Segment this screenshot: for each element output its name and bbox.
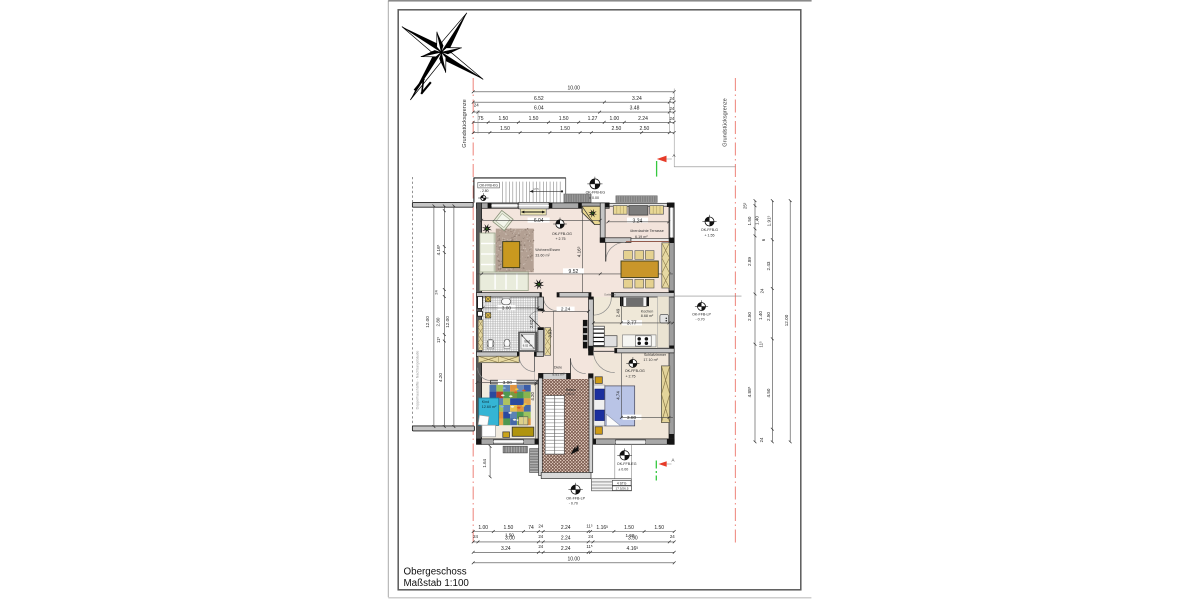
svg-text:Schlafzimmer: Schlafzimmer	[644, 353, 667, 357]
svg-text:3.24: 3.24	[633, 219, 643, 225]
svg-text:1.00: 1.00	[609, 116, 619, 122]
svg-text:1.50: 1.50	[559, 116, 569, 122]
svg-text:1.50: 1.50	[498, 116, 508, 122]
svg-text:1.50: 1.50	[529, 116, 539, 122]
svg-text:9.52: 9.52	[569, 269, 579, 275]
svg-text:17.10 m²: 17.10 m²	[643, 358, 658, 362]
svg-text:3.24: 3.24	[501, 546, 511, 552]
svg-text:1.50: 1.50	[654, 525, 664, 531]
svg-text:24: 24	[473, 534, 478, 539]
svg-text:2.24: 2.24	[638, 116, 648, 122]
svg-text:+ 1.55: + 1.55	[704, 233, 714, 237]
svg-text:74: 74	[528, 525, 534, 531]
svg-text:OK-FFB-OG: OK-FFB-OG	[625, 369, 645, 373]
svg-text:1.50: 1.50	[500, 126, 510, 132]
svg-text:3.24: 3.24	[632, 96, 642, 102]
svg-text:2.24: 2.24	[561, 525, 571, 531]
svg-text:24: 24	[538, 534, 543, 539]
svg-text:6.04: 6.04	[534, 106, 544, 112]
svg-text:± 0.00: ± 0.00	[589, 196, 599, 200]
svg-text:3.80: 3.80	[627, 415, 637, 421]
svg-text:1.50: 1.50	[505, 533, 514, 538]
svg-text:24: 24	[539, 374, 543, 378]
svg-text:12.00: 12.00	[445, 316, 450, 328]
svg-text:- 2.80: - 2.80	[480, 189, 489, 193]
svg-text:2.24: 2.24	[561, 546, 571, 552]
svg-text:2.80: 2.80	[435, 317, 440, 326]
svg-text:Grundstücksgrenze: Grundstücksgrenze	[462, 99, 468, 148]
svg-text:1.50: 1.50	[560, 126, 570, 132]
svg-text:12.00: 12.00	[784, 314, 789, 326]
svg-text:6.04: 6.04	[534, 218, 544, 224]
svg-text:2.49: 2.49	[615, 308, 620, 317]
svg-text:24: 24	[588, 534, 593, 539]
svg-text:24: 24	[433, 290, 438, 295]
svg-text:10.00: 10.00	[567, 556, 580, 562]
svg-text:Bad: Bad	[524, 340, 530, 344]
svg-text:OK-FFB-EG: OK-FFB-EG	[617, 462, 637, 466]
svg-text:17.5: 17.5	[533, 187, 539, 191]
svg-text:Kochen: Kochen	[641, 309, 654, 313]
svg-text:4.74: 4.74	[615, 391, 620, 400]
svg-text:2.50: 2.50	[747, 312, 752, 321]
svg-text:4.20: 4.20	[530, 392, 535, 401]
svg-text:33.60 m²: 33.60 m²	[535, 253, 550, 257]
svg-text:3.93: 3.93	[547, 329, 552, 338]
svg-text:A: A	[672, 458, 675, 463]
svg-text:75: 75	[478, 116, 484, 122]
svg-text:1.50: 1.50	[624, 525, 634, 531]
svg-text:24: 24	[759, 437, 764, 442]
svg-text:24: 24	[538, 544, 543, 549]
svg-text:24: 24	[759, 288, 764, 293]
svg-text:Kind: Kind	[482, 400, 489, 404]
svg-text:1.50: 1.50	[626, 533, 635, 538]
svg-text:OK-FFB-KG: OK-FFB-KG	[479, 184, 498, 188]
svg-text:Obergeschoss: Obergeschoss	[404, 567, 467, 578]
svg-text:+ 2.75: + 2.75	[555, 237, 565, 241]
svg-text:8.81 m²: 8.81 m²	[552, 372, 565, 376]
svg-text:1.50: 1.50	[747, 216, 752, 225]
svg-text:1.40: 1.40	[754, 216, 759, 225]
svg-text:2.24: 2.24	[561, 536, 571, 542]
svg-text:überdachte Terrasse: überdachte Terrasse	[630, 229, 664, 233]
svg-text:A: A	[673, 153, 676, 158]
svg-text:6.52: 6.52	[534, 96, 544, 102]
svg-text:4.20: 4.20	[438, 373, 443, 382]
svg-text:24: 24	[670, 534, 675, 539]
svg-text:24: 24	[474, 103, 479, 108]
svg-text:3.48: 3.48	[630, 106, 640, 112]
svg-text:12.60 m²: 12.60 m²	[482, 405, 497, 409]
svg-text:3.00: 3.00	[503, 380, 513, 386]
svg-text:Grundstücksgrenze: Grundstücksgrenze	[723, 98, 729, 147]
svg-text:2.50: 2.50	[766, 312, 771, 321]
svg-text:17.5/26.5: 17.5/26.5	[616, 487, 629, 491]
svg-text:4.50 m²: 4.50 m²	[565, 392, 576, 396]
svg-text:24: 24	[538, 524, 543, 529]
svg-text:OK-FFB-OG: OK-FFB-OG	[552, 232, 572, 236]
svg-text:2.24: 2.24	[561, 307, 571, 313]
svg-text:1.27: 1.27	[588, 116, 598, 122]
svg-text:2.62: 2.62	[529, 319, 534, 328]
svg-text:2.50: 2.50	[640, 126, 650, 132]
svg-text:OK-FFB-EG: OK-FFB-EG	[586, 190, 606, 194]
svg-text:6.02 m²: 6.02 m²	[523, 343, 533, 347]
svg-text:2.89: 2.89	[747, 257, 752, 266]
svg-text:+ 2.75: + 2.75	[625, 374, 635, 378]
svg-text:Doppelhaushälfte - Nachbargebä: Doppelhaushälfte - Nachbargebäude	[415, 351, 419, 410]
svg-text:Maßstab 1:100: Maßstab 1:100	[404, 578, 470, 589]
svg-text:- 0.70: - 0.70	[695, 317, 704, 321]
svg-text:Wohnen/Essen: Wohnen/Essen	[535, 248, 560, 252]
svg-text:6.19 m²: 6.19 m²	[635, 235, 648, 239]
svg-text:1.64: 1.64	[482, 458, 487, 467]
svg-text:4.50: 4.50	[766, 388, 771, 397]
svg-text:3.77: 3.77	[627, 321, 637, 327]
svg-text:± 0.00: ± 0.00	[618, 468, 628, 472]
svg-text:OK-FFB-G: OK-FFB-G	[701, 228, 718, 232]
svg-text:3.00: 3.00	[502, 306, 512, 312]
svg-text:1.00: 1.00	[478, 525, 488, 531]
svg-text:Gurtkasten: Gurtkasten	[604, 293, 616, 296]
svg-text:1.50: 1.50	[504, 525, 514, 531]
svg-text:8.68 m²: 8.68 m²	[641, 314, 654, 318]
svg-text:12.00: 12.00	[425, 316, 430, 328]
svg-text:1.40: 1.40	[758, 311, 763, 320]
svg-text:- 0.70: - 0.70	[569, 501, 578, 505]
svg-text:Diele: Diele	[554, 365, 562, 369]
svg-text:2.50: 2.50	[612, 126, 622, 132]
svg-text:OK-FFB-LP: OK-FFB-LP	[692, 312, 711, 316]
svg-text:10.00: 10.00	[567, 86, 580, 92]
svg-text:2.43: 2.43	[766, 261, 771, 270]
svg-text:OK-FFB-LP: OK-FFB-LP	[566, 496, 585, 500]
svg-text:Balkon: Balkon	[566, 388, 576, 392]
svg-text:4 STG: 4 STG	[617, 481, 627, 485]
